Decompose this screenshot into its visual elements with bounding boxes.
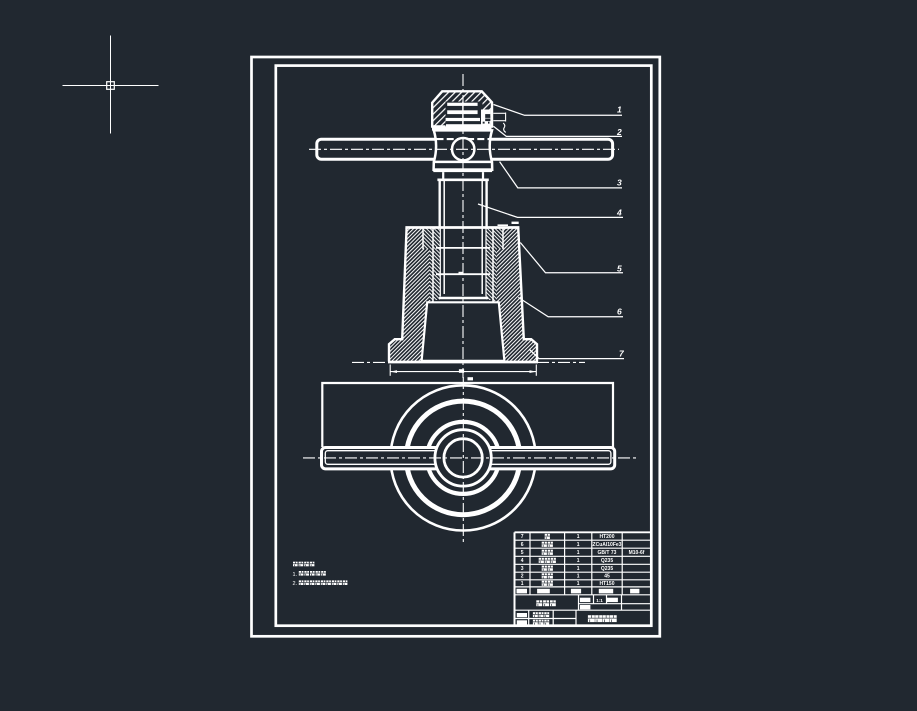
svg-text:1: 1 [577,581,580,587]
svg-text:1: 1 [577,534,580,540]
svg-text:ZCuAl10Fe3: ZCuAl10Fe3 [593,542,622,548]
svg-text:3: 3 [617,178,622,188]
svg-text:1.: 1. [293,572,298,578]
svg-text:GB/T 73: GB/T 73 [598,550,617,556]
svg-text:Q235: Q235 [601,558,613,564]
svg-text:5: 5 [617,264,622,274]
svg-text:HT200: HT200 [599,534,614,540]
svg-text:6: 6 [617,307,622,317]
svg-text:2: 2 [521,574,524,580]
svg-text:M10-6f: M10-6f [629,550,645,556]
svg-text:7: 7 [521,534,524,540]
svg-text:4: 4 [616,208,622,218]
svg-text:3: 3 [521,566,524,572]
svg-text:4: 4 [521,558,524,564]
svg-text:1: 1 [577,558,580,564]
svg-text:1:1: 1:1 [596,598,603,603]
svg-text:1: 1 [617,105,622,115]
svg-text:2: 2 [616,127,622,137]
svg-text:45: 45 [604,574,610,580]
svg-text:5: 5 [521,550,524,556]
svg-text:Q235: Q235 [601,566,613,572]
svg-text:1: 1 [577,574,580,580]
svg-text:6: 6 [521,542,524,548]
svg-text:1: 1 [577,550,580,556]
svg-text:2.: 2. [293,581,298,587]
svg-text:1: 1 [577,566,580,572]
svg-text:HT150: HT150 [599,581,614,587]
svg-text:1: 1 [577,542,580,548]
svg-text:1: 1 [521,581,524,587]
